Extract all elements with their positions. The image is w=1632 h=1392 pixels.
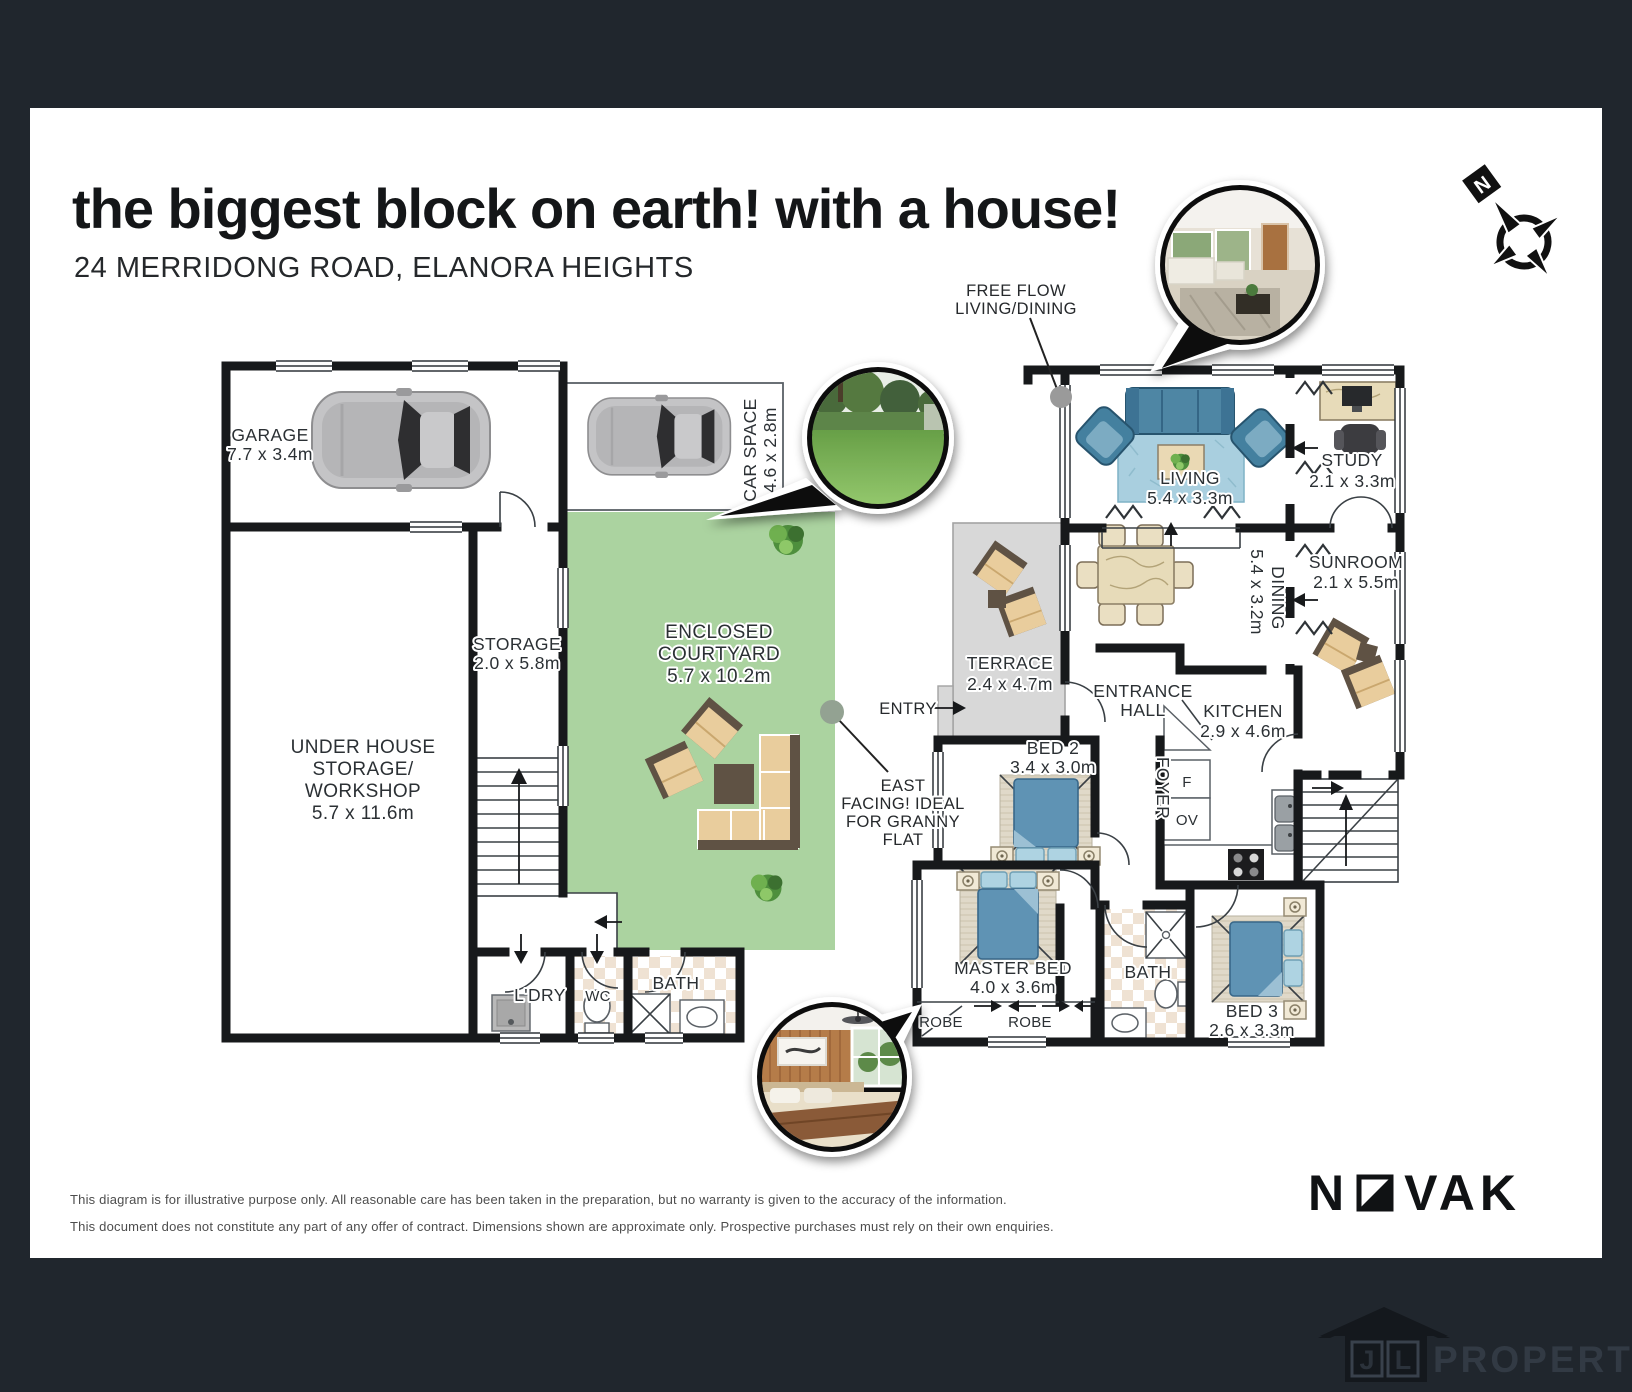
novak-logo-square-icon [1355, 1173, 1395, 1213]
courtyard-line2: COURTYARD [658, 644, 780, 665]
disclaimer-line-2: This document does not constitute any pa… [70, 1213, 1080, 1240]
jl-property-watermark: J L PROPERTY [1300, 1290, 1632, 1392]
novak-logo-vak: VAK [1404, 1164, 1521, 1222]
under-house-dims: 5.7 x 11.6m [312, 803, 414, 824]
oven-label: OV [1176, 812, 1198, 829]
compass-icon: N [1439, 145, 1587, 302]
robe-large-label: ROBE [1008, 1014, 1052, 1031]
east-facing-line2: FACING! IDEAL [841, 795, 964, 813]
photo-callout-living [1150, 180, 1325, 372]
photo-callout-bedroom [752, 997, 922, 1157]
dining-furniture [1077, 525, 1193, 625]
bed2-dims: 3.4 x 3.0m [1010, 757, 1096, 777]
garage-name: GARAGE [231, 425, 308, 445]
jl-watermark-property-text: PROPERTY [1433, 1339, 1632, 1380]
garage-dims: 7.7 x 3.4m [227, 444, 313, 464]
terrace-dims: 2.4 x 4.7m [967, 674, 1053, 694]
stairs-right [1302, 779, 1398, 882]
free-flow-line2: LIVING/DINING [955, 300, 1077, 318]
terrace-entry-step [938, 686, 953, 738]
car-space-dims: 4.6 x 2.8m [760, 407, 780, 493]
master-bed-dims: 4.0 x 3.6m [970, 977, 1056, 997]
master-bed-furniture [957, 868, 1059, 964]
master-bed-name: MASTER BED [954, 958, 1072, 978]
novak-logo: N VAK [1308, 1164, 1521, 1222]
laundry-label: L'DRY [514, 985, 566, 1005]
storage-name: STORAGE [473, 634, 561, 654]
bed3-name: BED 3 [1226, 1001, 1279, 1021]
living-name: LIVING [1160, 468, 1220, 488]
page-frame: the biggest block on earth! with a house… [0, 0, 1632, 1392]
wc-label: WC [585, 988, 611, 1005]
free-flow-marker-dot [1050, 386, 1072, 408]
kitchen-name: KITCHEN [1203, 701, 1283, 721]
east-facing-line3: FOR GRANNY [846, 813, 960, 831]
disclaimer: This diagram is for illustrative purpose… [70, 1186, 1080, 1240]
bath-label: BATH [1125, 962, 1172, 982]
terrace-name: TERRACE [967, 653, 1053, 673]
sunroom-furniture [1312, 617, 1395, 709]
car-space-name: CAR SPACE [740, 398, 760, 501]
fridge-label: F [1182, 774, 1191, 791]
foyer-label: FOYER [1153, 757, 1173, 819]
storage-dims: 2.0 x 5.8m [474, 653, 560, 673]
courtyard-dims: 5.7 x 10.2m [667, 666, 771, 687]
dining-name: DINING [1268, 566, 1288, 630]
robe-small-label: ROBE [919, 1014, 963, 1031]
kitchen-dims: 2.9 x 4.6m [1200, 721, 1286, 741]
entry-label: ENTRY [879, 700, 937, 718]
bed2-furniture [991, 775, 1100, 865]
courtyard-line1: ENCLOSED [665, 622, 773, 643]
free-flow-line1: FREE FLOW [966, 282, 1066, 300]
study-dims: 2.1 x 3.3m [1309, 471, 1395, 491]
under-house-line3: WORKSHOP [305, 781, 421, 802]
novak-logo-n: N [1308, 1164, 1346, 1222]
entrance-hall-line1: ENTRANCE [1093, 681, 1192, 701]
east-facing-marker-dot [820, 700, 844, 724]
carport-car [588, 395, 730, 478]
bath-lower-label: BATH [653, 973, 700, 993]
entrance-hall-line2: HALL [1120, 700, 1165, 720]
jl-watermark-letter-l: L [1395, 1345, 1412, 1375]
dining-dims: 5.4 x 3.2m [1247, 549, 1267, 635]
study-name: STUDY [1321, 450, 1382, 470]
east-facing-line4: FLAT [883, 831, 924, 849]
living-dims: 5.4 x 3.3m [1147, 488, 1233, 508]
jl-watermark-letter-j: J [1359, 1345, 1374, 1375]
sunroom-dims: 2.1 x 5.5m [1313, 572, 1399, 592]
east-facing-line1: EAST [881, 777, 926, 795]
under-house-line1: UNDER HOUSE [291, 737, 436, 758]
under-house-line2: STORAGE/ [312, 759, 413, 780]
garage-car [312, 388, 490, 492]
bed2-name: BED 2 [1027, 738, 1080, 758]
disclaimer-line-1: This diagram is for illustrative purpose… [70, 1186, 1080, 1213]
bed3-dims: 2.6 x 3.3m [1209, 1020, 1295, 1040]
sunroom-name: SUNROOM [1309, 552, 1403, 572]
